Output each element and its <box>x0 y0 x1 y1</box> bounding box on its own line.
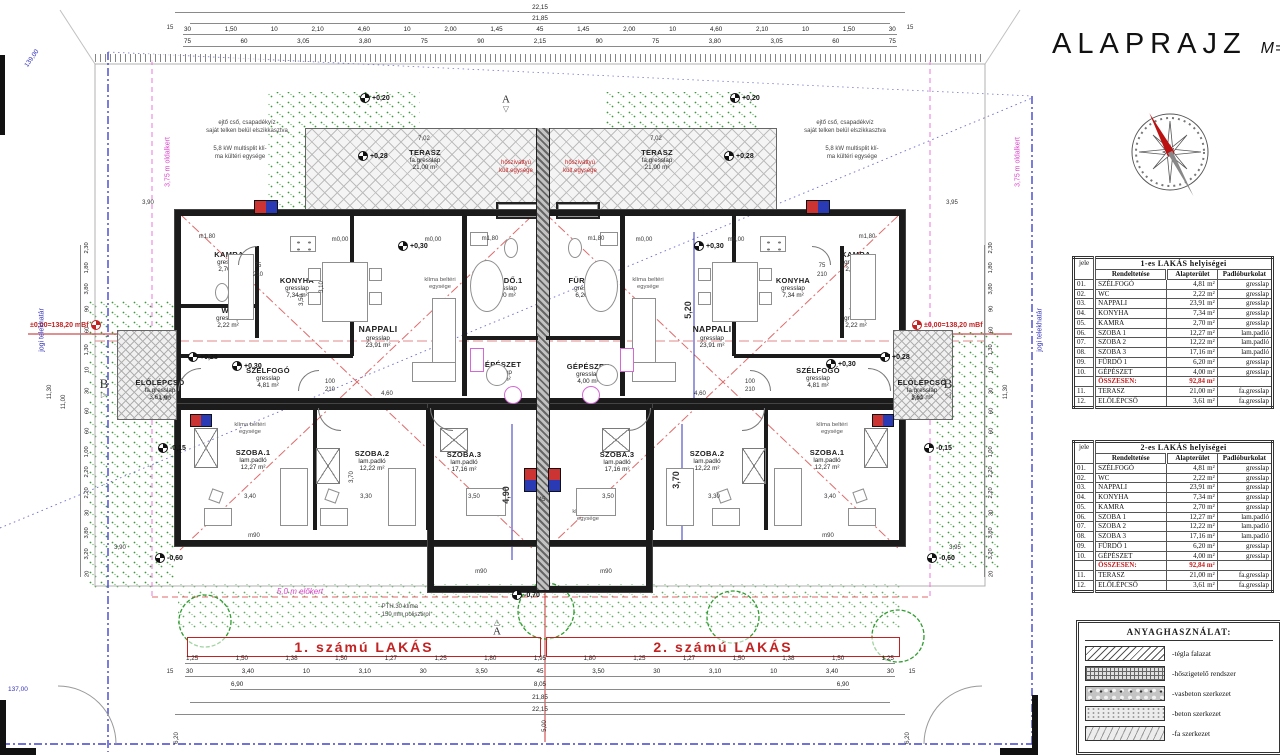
table-row: 09.FÜRDŐ 16,20 m²gresslap <box>1074 357 1273 367</box>
table-cell <box>1074 377 1095 387</box>
section-marker-b-right: B◁ <box>944 377 953 399</box>
dim-value: 2,30 <box>989 242 995 253</box>
level-marker: +0,28 <box>188 352 218 362</box>
table-row: 05.KAMRA2,70 m²gresslap <box>1074 502 1273 512</box>
dim-value: 2,00 <box>622 26 636 34</box>
hmv-tank <box>582 386 600 404</box>
dim-red: 5,00 <box>542 720 548 732</box>
dim-value: 1,50 <box>732 655 746 663</box>
level-marker: -0,60 <box>927 553 955 563</box>
table-row: 11.TERASZ21,00 m²fa.gresslap <box>1074 571 1273 581</box>
dining-table <box>712 262 758 322</box>
boiler-tank <box>486 364 508 386</box>
dim-value: 1,27 <box>384 655 398 663</box>
desk <box>712 508 740 526</box>
dim-value: 75 <box>420 38 429 46</box>
level-icon <box>158 443 168 453</box>
dim-value: 30 <box>85 387 91 393</box>
dim-value: 3,10 <box>708 668 722 676</box>
table-cell: 6,20 m² <box>1167 541 1217 551</box>
chair <box>369 292 382 305</box>
table-cell: gresslap <box>1217 551 1272 561</box>
legend-label: -hőszigetelő rendszer <box>1172 669 1236 678</box>
level-marker: +0,30 <box>398 241 428 251</box>
table-cell: 12,27 m² <box>1167 328 1217 338</box>
table-cell: lam.padló <box>1217 338 1272 348</box>
table-cell: 02. <box>1074 289 1095 299</box>
scale-label: M=1:100 <box>1261 40 1280 57</box>
legend-label: -vasbeton szerkezet <box>1172 689 1231 698</box>
partition-wall <box>546 336 624 340</box>
table-cell: 07. <box>1074 338 1095 348</box>
table-row: ÖSSZESEN:92,84 m² <box>1074 377 1273 387</box>
dim-blue-520: 5,20 <box>683 301 693 319</box>
wardrobe <box>864 428 888 468</box>
table-cell: 7,34 m² <box>1167 493 1217 503</box>
table-cell: 23,91 m² <box>1167 483 1217 493</box>
dim-corner: 15 <box>167 25 174 31</box>
table-row: 07.SZOBA 212,22 m²lam.padló <box>1074 338 1273 348</box>
dim-value: 1,45 <box>576 26 590 34</box>
table-cell: ELŐLÉPCSŐ <box>1095 396 1167 407</box>
table-cell: 2,70 m² <box>1167 502 1217 512</box>
dim-value: 6,90 <box>230 681 244 689</box>
table-cell: 05. <box>1074 502 1095 512</box>
table-cell: gresslap <box>1217 502 1272 512</box>
dim-value: 90 <box>989 306 995 312</box>
table-cell: 4,81 m² <box>1167 279 1217 289</box>
table-cell: 12,27 m² <box>1167 512 1217 522</box>
table-cell: 03. <box>1074 299 1095 309</box>
dim-value: 4,60 <box>357 26 371 34</box>
dim-value: 10 <box>989 367 995 373</box>
table-header: Padlóburkolat <box>1217 454 1272 464</box>
dim-value: 2,20 <box>989 487 995 498</box>
dim-value: 3,50 <box>474 668 488 676</box>
downpipe-note: saját telken belül elszikkasztva <box>804 128 886 134</box>
parapet-mark: m1,80 <box>199 234 216 240</box>
parapet-mark: m90 <box>475 569 487 575</box>
heatpump-label: hőszivattyú <box>501 160 531 166</box>
table-cell: 10. <box>1074 367 1095 377</box>
dim-value: 1,00 <box>989 446 995 457</box>
level-marker: -0,70 <box>512 590 540 600</box>
table-row: 08.SZOBA 317,16 m²lam.padló <box>1074 532 1273 542</box>
materials-legend: ANYAGHASZNÁLAT: -tégla falazat-hőszigete… <box>1076 620 1280 755</box>
ac-outdoor-unit <box>254 200 278 214</box>
dim-value: 3,80 <box>708 38 722 46</box>
indoor-ac-label: klíma beltériegysége <box>632 277 663 291</box>
level-icon <box>360 93 370 103</box>
level-marker: -0,15 <box>924 443 952 453</box>
dim-value: 1,00 <box>85 446 91 457</box>
dim-value: 10 <box>270 26 279 34</box>
level-marker: +0,20 <box>360 93 390 103</box>
dim-chain-left: 2,301,803,8090601,30103060601,002,202,20… <box>80 245 95 577</box>
section-marker-a-top: A▽ <box>502 95 510 114</box>
level-icon <box>730 93 740 103</box>
table-cell: SZÉLFOGÓ <box>1095 279 1167 289</box>
table-cell: WC <box>1095 473 1167 483</box>
dim-value: 75 <box>183 38 192 46</box>
section-triangle-icon: ▽ <box>502 106 510 114</box>
wardrobe <box>440 428 468 452</box>
table-cell: 4,00 m² <box>1167 551 1217 561</box>
fence-tick-line <box>95 54 985 62</box>
indoor-ac-label: klíma beltériegysége <box>234 422 265 436</box>
sofa <box>632 298 656 366</box>
table-cell: ÖSSZESEN: <box>1095 377 1167 387</box>
dim-value: 3,80 <box>358 38 372 46</box>
level-marker: +0,30 <box>694 241 724 251</box>
table-cell: SZOBA 3 <box>1095 532 1167 542</box>
table-row: 02.WC2,22 m²gresslap <box>1074 473 1273 483</box>
dim-red: 3,95 <box>949 545 961 551</box>
dim-value: 1,25 <box>433 655 447 663</box>
dim-value: 3,20 <box>85 548 91 559</box>
dim-room: 3,30 <box>708 494 720 500</box>
dim-value: 10 <box>668 26 677 34</box>
table-cell <box>1217 377 1272 387</box>
dim-door: 210 <box>325 387 335 393</box>
dim-room: 4,60 <box>381 391 393 397</box>
dining-table <box>322 262 368 322</box>
table-cell: 2,22 m² <box>1167 473 1217 483</box>
legend-item: -beton szerkezet <box>1085 706 1273 721</box>
table-cell: 05. <box>1074 318 1095 328</box>
indoor-ac-label: klíma beltériegysége <box>816 422 847 436</box>
table-cell: SZOBA 3 <box>1095 348 1167 358</box>
dim-value: 3,80 <box>85 528 91 539</box>
table-cell: SZOBA 1 <box>1095 328 1167 338</box>
partition-wall <box>650 408 654 530</box>
heatpump-label: kült.egysége <box>563 168 597 174</box>
floor-plan-sheet: TERASZfa.gresslap21,00 m² TERASZfa.gress… <box>0 0 1280 755</box>
table-cell: NAPPALI <box>1095 483 1167 493</box>
compass-rose-icon <box>1124 106 1216 198</box>
dim-door: 210 <box>253 272 263 278</box>
dim-corner: 15 <box>909 669 916 675</box>
dim-value: 1,50 <box>334 655 348 663</box>
room-label-szoba1-1: SZOBA.1lam.padló12,27 m² <box>236 449 271 471</box>
legend-swatch-wood-icon <box>1085 726 1165 741</box>
table-cell: 7,34 m² <box>1167 309 1217 319</box>
sofa <box>412 362 456 382</box>
dim-value: 30 <box>185 668 194 676</box>
table-row: 07.SZOBA 212,22 m²lam.padló <box>1074 522 1273 532</box>
parapet-mark: m90 <box>600 569 612 575</box>
legend-swatch-rc-icon <box>1085 686 1165 701</box>
dim-value: 20 <box>85 571 91 577</box>
table-cell: fa.gresslap <box>1217 571 1272 581</box>
partition-wall <box>462 212 467 396</box>
dim-corner: 15 <box>907 25 914 31</box>
table-row: 03.NAPPALI23,91 m²gresslap <box>1074 483 1273 493</box>
table-cell: 21,00 m² <box>1167 571 1217 581</box>
section-marker-b-left: B▷ <box>100 377 109 399</box>
level-icon <box>724 151 734 161</box>
table-cell: 12. <box>1074 580 1095 591</box>
table-row: 09.FÜRDŐ 16,20 m²gresslap <box>1074 541 1273 551</box>
table-cell: WC <box>1095 289 1167 299</box>
ac-outdoor-unit <box>806 200 830 214</box>
gate-arc <box>58 686 116 744</box>
partition-wall <box>462 336 538 340</box>
dim-door: 75 <box>819 263 826 269</box>
parapet-mark: m0,00 <box>332 237 349 243</box>
chair <box>759 268 772 281</box>
dim-value: 45 <box>535 668 544 676</box>
table-cell: 4,00 m² <box>1167 367 1217 377</box>
heatpump-label: kült.egysége <box>499 168 533 174</box>
level-icon <box>694 241 704 251</box>
table-header: Rendeltetése <box>1095 454 1167 464</box>
dim-value: 60 <box>989 408 995 414</box>
legend-item: -hőszigetelő rendszer <box>1085 666 1273 681</box>
level-icon <box>155 553 165 563</box>
dim-value: 1,80 <box>989 263 995 274</box>
table-cell: 3,61 m² <box>1167 580 1217 591</box>
neighbour-wall <box>1032 695 1038 755</box>
neighbour-wall <box>0 700 6 755</box>
dim-value: 2,20 <box>85 487 91 498</box>
toilet <box>568 238 582 258</box>
table-cell: 02. <box>1074 473 1095 483</box>
dim-value: 30 <box>85 510 91 516</box>
partition-wall <box>734 354 890 358</box>
table-cell: 92,84 m² <box>1167 561 1217 571</box>
dim-value: 20 <box>989 571 995 577</box>
table-cell <box>1074 561 1095 571</box>
dim-value: 90 <box>476 38 485 46</box>
partition-wall <box>426 408 430 530</box>
side-garden-label-left: 3,75 m oldalkert <box>165 137 172 187</box>
dim-chain-bottom-2: 303,40103,10303,50453,50303,10103,4030 <box>185 668 895 677</box>
level-icon <box>912 320 922 330</box>
dim-value: 1,30 <box>989 344 995 355</box>
legend-swatch-insul-icon <box>1085 666 1165 681</box>
room-label-szoba1-2: SZOBA.1lam.padló12,27 m² <box>810 449 845 471</box>
room-label-szelfogo-2: SZÉLFOGÓgresslap4,81 m² <box>796 367 840 389</box>
dim-value: 3,20 <box>989 548 995 559</box>
level-icon <box>927 553 937 563</box>
parapet-mark: m1,80 <box>482 236 499 242</box>
dim-value: 3,10 <box>358 668 372 676</box>
table-row: ÖSSZESEN:92,84 m² <box>1074 561 1273 571</box>
dim-red: 6,20 <box>174 732 180 744</box>
table-header: Alapterület <box>1167 270 1217 280</box>
dim-value: 2,10 <box>311 26 325 34</box>
table-cell: 08. <box>1074 532 1095 542</box>
dim-room: 3,10 <box>319 281 325 293</box>
wardrobe <box>316 448 340 484</box>
dim-value: 1,50 <box>235 655 249 663</box>
dim-value: 1,38 <box>284 655 298 663</box>
entry-porch-right <box>893 330 953 420</box>
dim-value: 8,05 <box>533 681 547 689</box>
parapet-mark: m90 <box>248 533 260 539</box>
table-row: 02.WC2,22 m²gresslap <box>1074 289 1273 299</box>
table-cell: NAPPALI <box>1095 299 1167 309</box>
table-cell: 01. <box>1074 279 1095 289</box>
entry-porch-left <box>117 330 177 420</box>
table-cell: gresslap <box>1217 493 1272 503</box>
legend-swatch-brick-icon <box>1085 646 1165 661</box>
downpipe-note: ejtő cső, csapadékvíz <box>816 120 873 126</box>
table-header: Rendeltetése <box>1095 270 1167 280</box>
room-label-terasz-1: TERASZfa.gresslap21,00 m² <box>409 149 441 171</box>
legend-label: -beton szerkezet <box>1172 709 1221 718</box>
dim-value: 60 <box>240 38 249 46</box>
table-row: 06.SZOBA 112,27 m²lam.padló <box>1074 512 1273 522</box>
dim-value: 75 <box>888 38 897 46</box>
wardrobe <box>602 428 630 452</box>
dim-value: 3,40 <box>241 668 255 676</box>
table-cell: gresslap <box>1217 309 1272 319</box>
kitchen-counter <box>850 254 876 320</box>
table-cell: 04. <box>1074 309 1095 319</box>
table-cell: SZÉLFOGÓ <box>1095 463 1167 473</box>
dim-value: 2,10 <box>755 26 769 34</box>
drawing-title: ALAPRAJZM=1:100 <box>1052 28 1280 61</box>
table-cell: 07. <box>1074 522 1095 532</box>
table-cell: gresslap <box>1217 367 1272 377</box>
dim-door: 210 <box>745 387 755 393</box>
multisplit-note: ma kültéri egysége <box>215 154 265 160</box>
table-cell: 21,00 m² <box>1167 387 1217 397</box>
dim-value: 75 <box>651 38 660 46</box>
desk <box>848 508 876 526</box>
table-cell: 01. <box>1074 463 1095 473</box>
level-marker: +0,30 <box>826 359 856 369</box>
dim-left-total-2: 11,00 <box>61 395 67 410</box>
dim-chain-top-1: 301,50102,104,60102,001,45451,452,00104,… <box>183 26 897 35</box>
dim-value: 1,80 <box>483 655 497 663</box>
front-garden-label: 5,0 m előkert <box>277 587 323 596</box>
plot-boundary-label-left: jogi telekhatár <box>39 308 46 352</box>
table-cell: SZOBA 1 <box>1095 512 1167 522</box>
table-cell: 08. <box>1074 348 1095 358</box>
party-wall <box>536 128 550 590</box>
dim-room: 4,60 <box>694 391 706 397</box>
dim-value: 60 <box>989 326 995 332</box>
table-row: 10.GÉPÉSZET4,00 m²gresslap <box>1074 551 1273 561</box>
dim-value: 3,50 <box>591 668 605 676</box>
table-cell: FÜRDŐ 1 <box>1095 541 1167 551</box>
table-cell: fa.gresslap <box>1217 580 1272 591</box>
dim-room: 1,90 <box>159 396 171 402</box>
dim-value: 30 <box>886 668 895 676</box>
table-cell: gresslap <box>1217 463 1272 473</box>
bed <box>774 468 802 526</box>
table-cell: KAMRA <box>1095 318 1167 328</box>
dim-value: 10 <box>85 367 91 373</box>
wall-buildup-note: - 150 mm polisztirol <box>378 612 430 618</box>
table-cell: KAMRA <box>1095 502 1167 512</box>
section-marker-a-bottom: △A <box>493 619 501 638</box>
table-cell: 92,84 m² <box>1167 377 1217 387</box>
bathtub <box>584 260 618 312</box>
dim-value: 1,25 <box>632 655 646 663</box>
toilet <box>504 238 518 258</box>
table-cell: GÉPÉSZET <box>1095 367 1167 377</box>
table-header: Padlóburkolat <box>1217 270 1272 280</box>
table-cell: gresslap <box>1217 279 1272 289</box>
parapet-mark: m0,00 <box>728 237 745 243</box>
level-marker: +0,28 <box>724 151 754 161</box>
dim-value: 1,80 <box>583 655 597 663</box>
table-cell: 3,61 m² <box>1167 396 1217 407</box>
table-cell: lam.padló <box>1217 348 1272 358</box>
bed <box>576 488 616 516</box>
dim-value: 2,15 <box>533 38 547 46</box>
table-title: 2-es LAKÁS helyiségei <box>1095 442 1273 454</box>
table-cell: TERASZ <box>1095 571 1167 581</box>
roof-projection-line <box>985 10 1020 64</box>
level-marker: +0,20 <box>730 93 760 103</box>
table-row: 04.KONYHA7,34 m²gresslap <box>1074 493 1273 503</box>
dim-value: 90 <box>595 38 604 46</box>
table-cell: FÜRDŐ 1 <box>1095 357 1167 367</box>
legend-swatch-conc-icon <box>1085 706 1165 721</box>
dim-value: 1,50 <box>224 26 238 34</box>
table-row: 12.ELŐLÉPCSŐ3,61 m²fa.gresslap <box>1074 580 1273 591</box>
dim-value: 1,25 <box>881 655 895 663</box>
chair <box>308 292 321 305</box>
table-cell: lam.padló <box>1217 512 1272 522</box>
level-icon <box>880 352 890 362</box>
dim-value: 30 <box>989 387 995 393</box>
table-cell: 23,91 m² <box>1167 299 1217 309</box>
dim-value: 60 <box>831 38 840 46</box>
table-row: 11.TERASZ21,00 m²fa.gresslap <box>1074 387 1273 397</box>
dim-value: 1,27 <box>682 655 696 663</box>
sofa <box>432 298 456 366</box>
dim-value: 45 <box>535 26 544 34</box>
dim-chain-top-sub: 21,85 <box>190 15 890 24</box>
legend-item: -fa szerkezet <box>1085 726 1273 741</box>
table-cell: 12. <box>1074 396 1095 407</box>
table-cell <box>1217 561 1272 571</box>
table-cell: gresslap <box>1217 483 1272 493</box>
roof-projection-line <box>60 10 95 64</box>
terrain-level-139: 139,00 <box>23 48 40 68</box>
tree <box>707 591 759 643</box>
table-row: 04.KONYHA7,34 m²gresslap <box>1074 309 1273 319</box>
table-cell: 03. <box>1074 483 1095 493</box>
level-icon <box>358 151 368 161</box>
dim-value: 3,80 <box>989 283 995 294</box>
page-title: ALAPRAJZ <box>1052 28 1247 60</box>
dim-red: 3,90 <box>114 545 126 551</box>
level-icon <box>232 361 242 371</box>
dim-wall: 45 <box>539 497 546 503</box>
table-cell: gresslap <box>1217 541 1272 551</box>
level-marker: -0,15 <box>158 443 186 453</box>
dim-chain-bottom-1: 1,251,501,381,501,271,251,801,951,801,25… <box>185 655 895 664</box>
dim-value: 3,05 <box>296 38 310 46</box>
dim-value: 1,30 <box>85 344 91 355</box>
dim-room: 3,50 <box>299 294 305 306</box>
toilet <box>215 283 229 302</box>
indoor-heatpump-unit <box>620 348 634 372</box>
dim-left-total: 11,30 <box>47 385 53 400</box>
dim-value: 90 <box>85 306 91 312</box>
table-cell: lam.padló <box>1217 532 1272 542</box>
table-cell: 12,22 m² <box>1167 522 1217 532</box>
indoor-ac-label: klíma beltériegysége <box>424 277 455 291</box>
bathtub <box>470 260 504 312</box>
